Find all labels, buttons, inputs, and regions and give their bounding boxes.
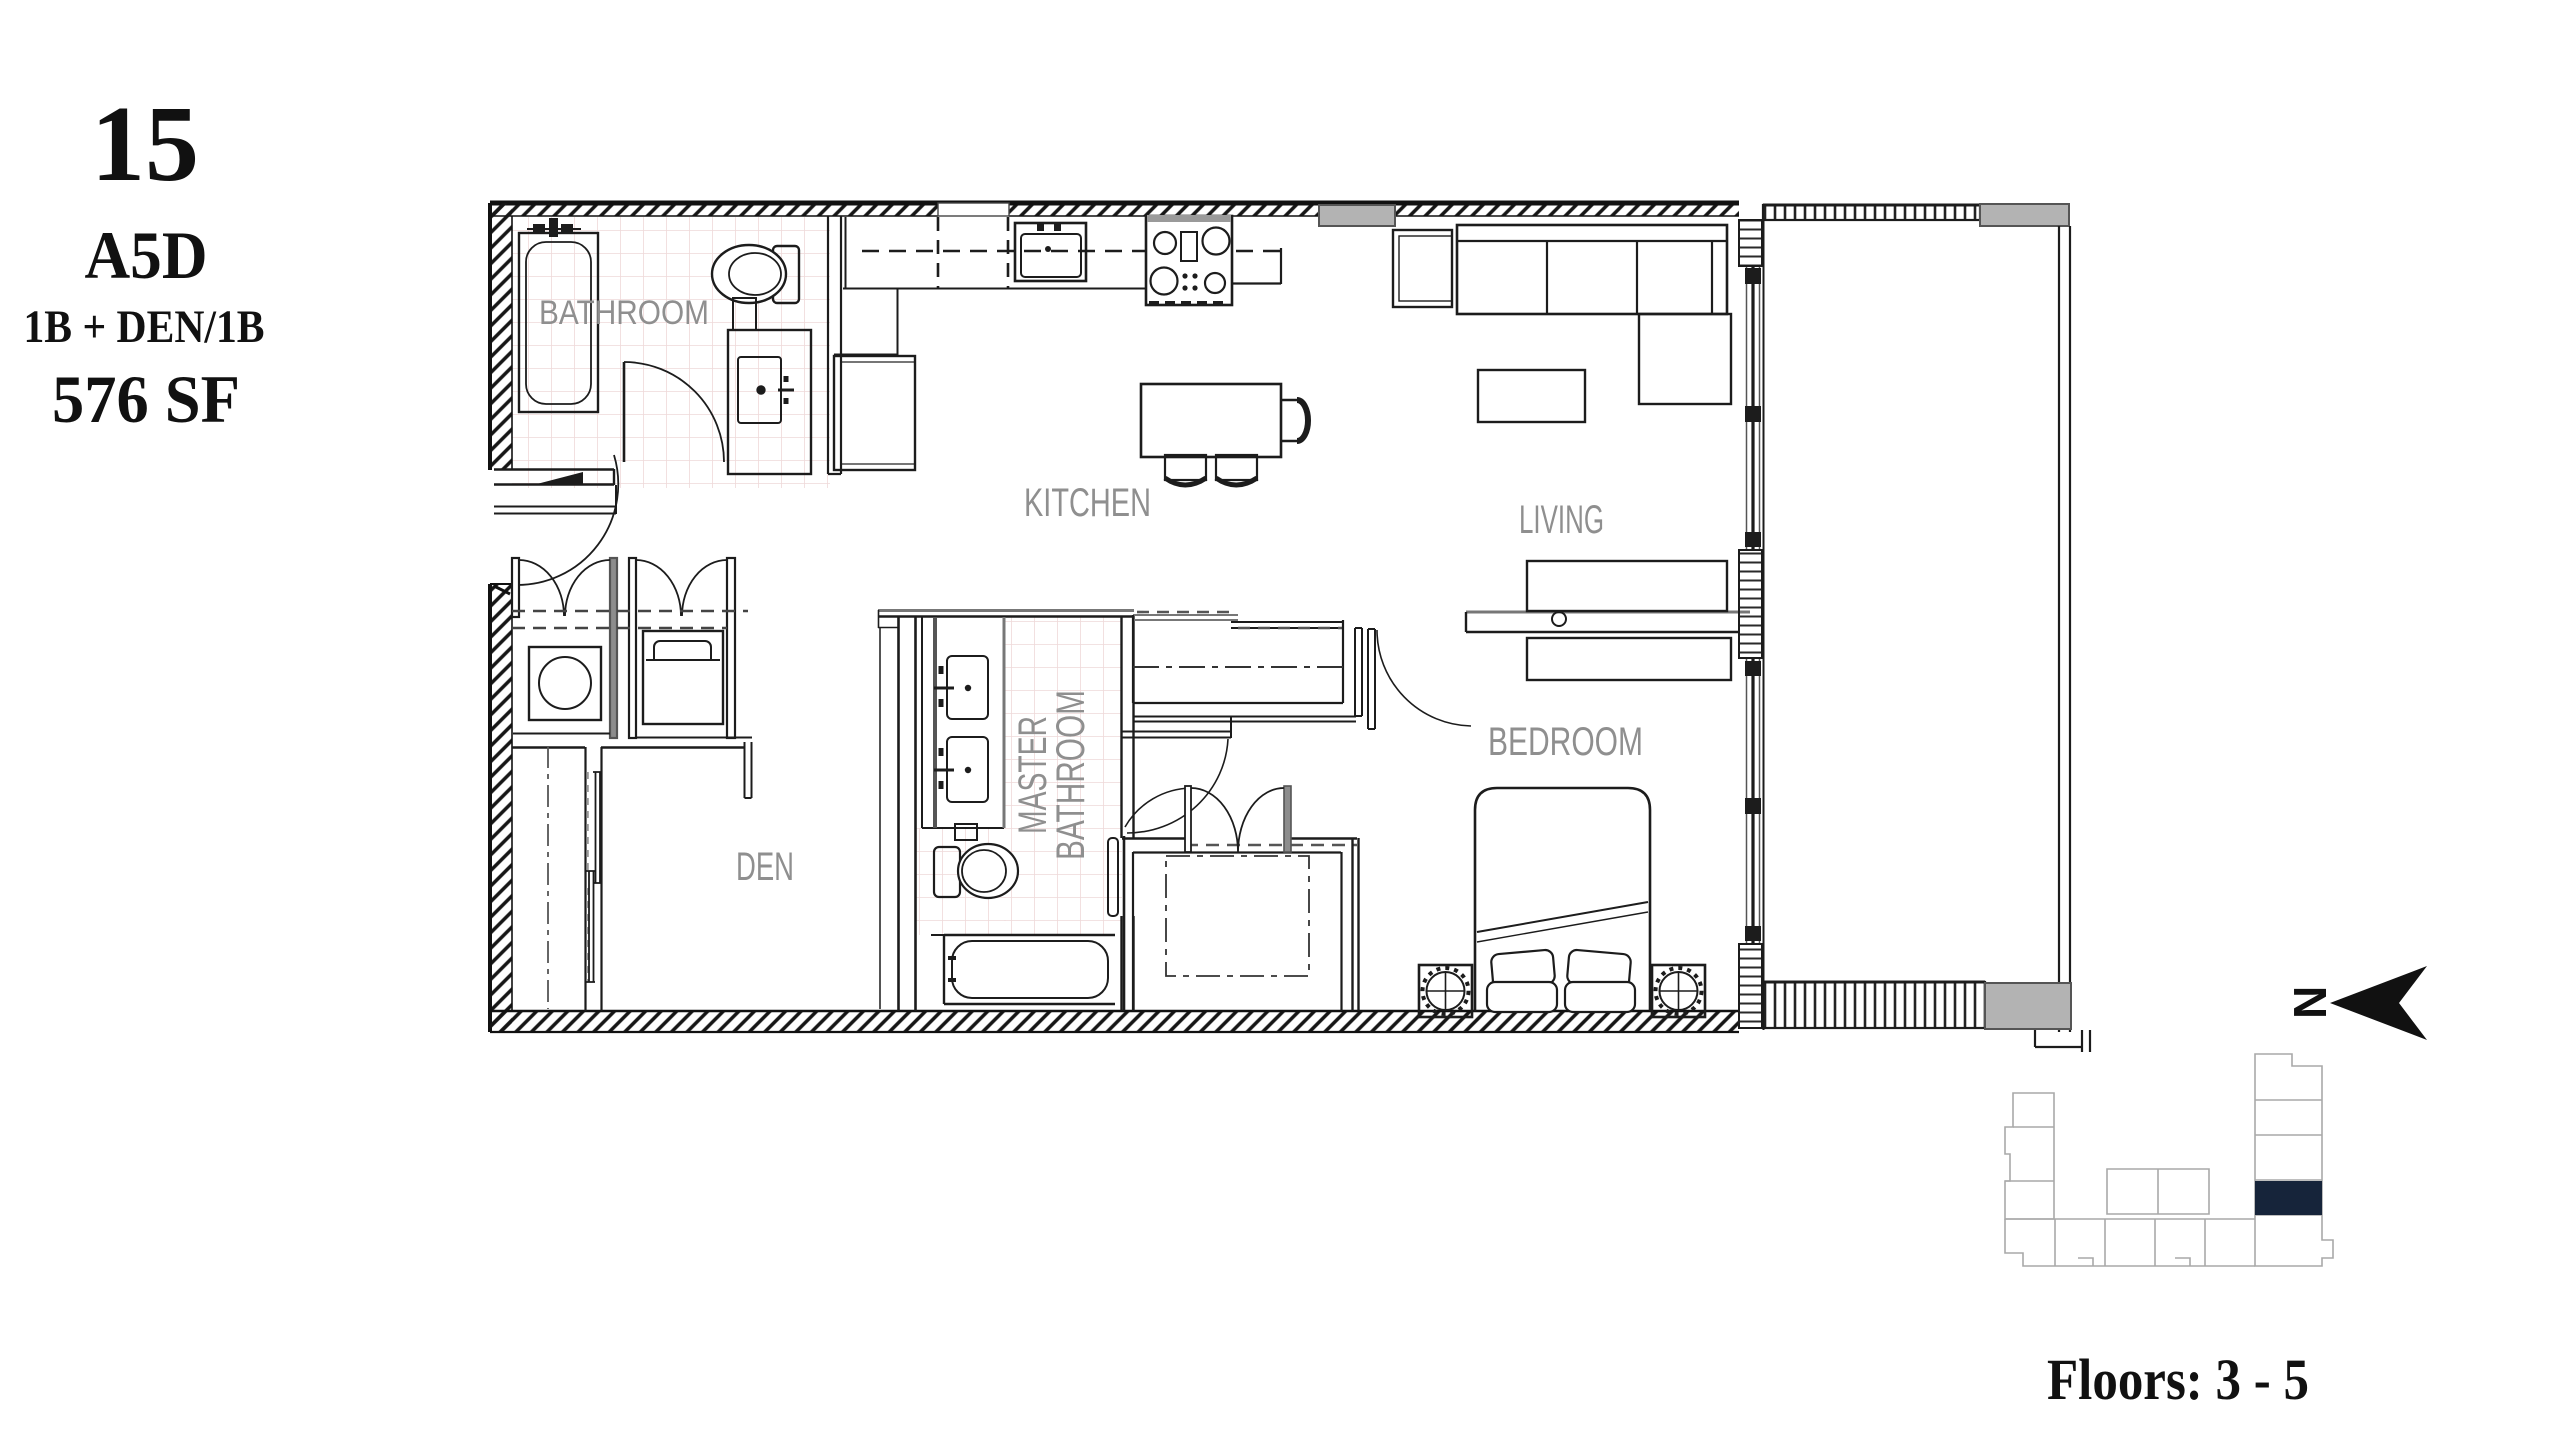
svg-text:1B + DEN/1B: 1B + DEN/1B bbox=[24, 301, 265, 353]
svg-text:DEN: DEN bbox=[736, 845, 794, 889]
svg-text:Floors: 3 - 5: Floors: 3 - 5 bbox=[2047, 1347, 2309, 1412]
svg-text:BEDROOM: BEDROOM bbox=[1488, 720, 1643, 764]
svg-text:BATHROOM: BATHROOM bbox=[1049, 690, 1093, 860]
svg-text:KITCHEN: KITCHEN bbox=[1024, 481, 1151, 525]
svg-text:BATHROOM: BATHROOM bbox=[539, 294, 709, 332]
svg-text:N: N bbox=[2284, 986, 2336, 1019]
svg-text:LIVING: LIVING bbox=[1519, 498, 1604, 542]
svg-text:A5D: A5D bbox=[85, 217, 208, 293]
svg-text:15: 15 bbox=[91, 85, 199, 204]
svg-text:576 SF: 576 SF bbox=[52, 361, 240, 437]
